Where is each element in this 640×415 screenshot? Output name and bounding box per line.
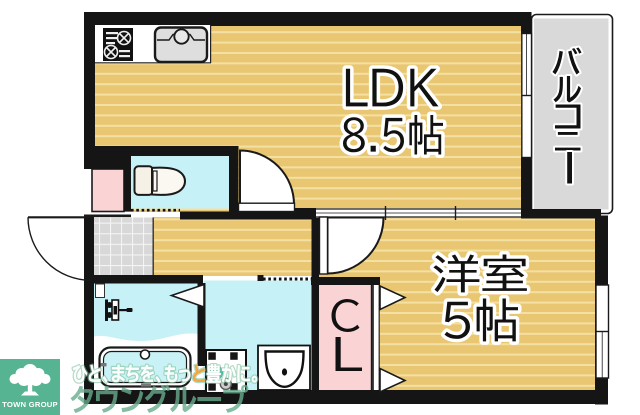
- svg-text:TOWN GROUP: TOWN GROUP: [2, 400, 58, 409]
